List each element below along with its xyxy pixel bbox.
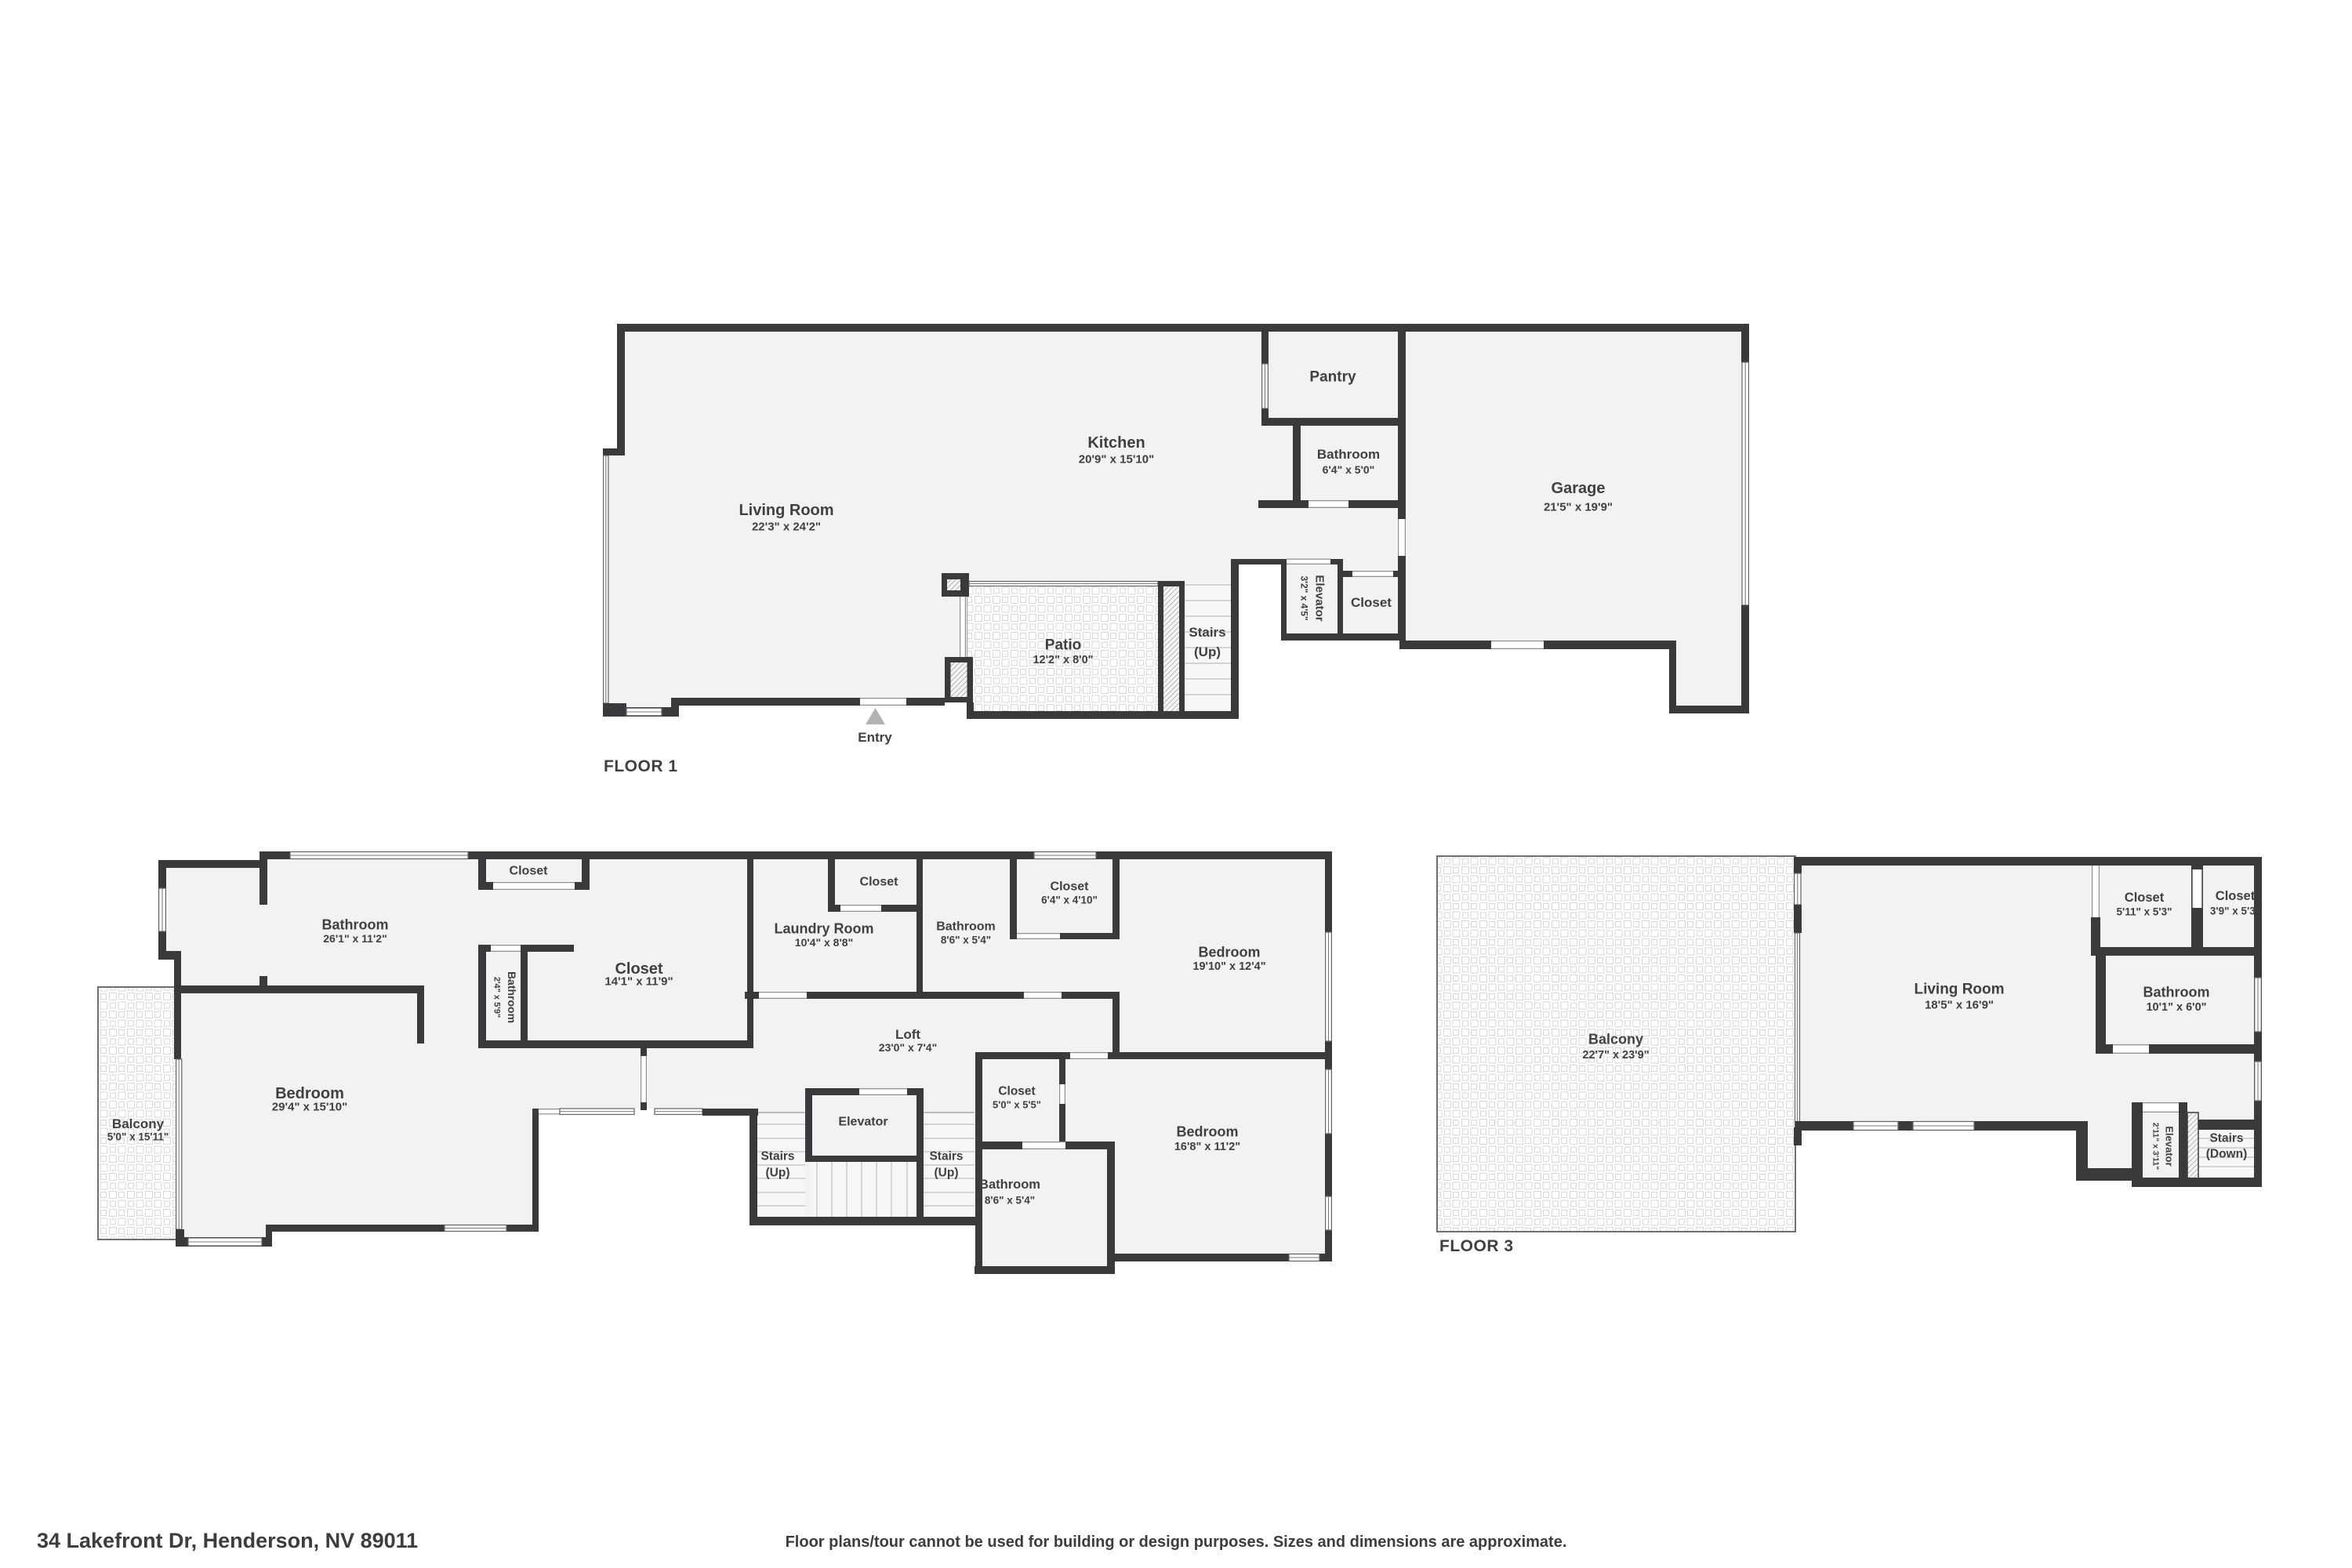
svg-text:18'5" x 16'9": 18'5" x 16'9": [1925, 998, 1994, 1011]
svg-text:21'5" x 19'9": 21'5" x 19'9": [1544, 500, 1613, 514]
svg-text:Bathroom: Bathroom: [979, 1178, 1040, 1192]
svg-text:Bathroom: Bathroom: [506, 971, 518, 1023]
svg-text:Bathroom: Bathroom: [936, 920, 996, 934]
svg-text:Patio: Patio: [1045, 637, 1081, 654]
svg-text:Bedroom: Bedroom: [1176, 1123, 1238, 1139]
svg-text:Pantry: Pantry: [1309, 369, 1356, 386]
svg-text:FLOOR 3: FLOOR 3: [1439, 1237, 1514, 1255]
svg-text:2'11" x 3'11": 2'11" x 3'11": [2151, 1123, 2160, 1171]
svg-text:Stairs: Stairs: [2209, 1131, 2243, 1145]
svg-text:29'4" x 15'10": 29'4" x 15'10": [272, 1100, 347, 1113]
svg-text:(Down): (Down): [2206, 1147, 2248, 1160]
svg-text:Closet: Closet: [510, 865, 549, 878]
svg-text:8'6" x 5'4": 8'6" x 5'4": [941, 935, 991, 946]
svg-text:2'4" x 5'9": 2'4" x 5'9": [492, 977, 501, 1018]
svg-text:26'1" x 11'2": 26'1" x 11'2": [323, 932, 387, 945]
svg-text:5'0" x 5'5": 5'0" x 5'5": [993, 1099, 1041, 1111]
svg-text:Garage: Garage: [1552, 480, 1606, 497]
svg-text:6'4" x 5'0": 6'4" x 5'0": [1323, 463, 1375, 476]
svg-text:Entry: Entry: [858, 730, 892, 745]
svg-text:34 Lakefront Dr, Henderson, NV: 34 Lakefront Dr, Henderson, NV 89011: [37, 1529, 418, 1552]
svg-text:Living Room: Living Room: [1914, 982, 2004, 998]
svg-text:Kitchen: Kitchen: [1087, 434, 1145, 452]
svg-text:(Up): (Up): [766, 1166, 790, 1179]
svg-text:22'7" x 23'9": 22'7" x 23'9": [1582, 1049, 1649, 1062]
svg-text:Closet: Closet: [2216, 889, 2256, 903]
svg-text:Stairs: Stairs: [929, 1149, 963, 1163]
svg-text:Elevator: Elevator: [838, 1116, 887, 1129]
svg-text:20'9" x 15'10": 20'9" x 15'10": [1079, 452, 1154, 466]
svg-text:Stairs: Stairs: [1189, 625, 1225, 640]
svg-text:Closet: Closet: [1051, 880, 1090, 894]
svg-text:23'0" x 7'4": 23'0" x 7'4": [879, 1041, 937, 1054]
svg-text:(Up): (Up): [935, 1166, 959, 1179]
svg-text:16'8" x 11'2": 16'8" x 11'2": [1174, 1141, 1240, 1153]
svg-text:12'2" x 8'0": 12'2" x 8'0": [1033, 654, 1093, 666]
svg-text:Closet: Closet: [998, 1084, 1035, 1098]
svg-text:Loft: Loft: [895, 1027, 920, 1042]
svg-text:3'2" x 4'5": 3'2" x 4'5": [1299, 575, 1310, 620]
svg-text:14'1" x 11'9": 14'1" x 11'9": [604, 975, 673, 988]
svg-text:(Up): (Up): [1194, 644, 1221, 659]
svg-text:Elevator: Elevator: [2164, 1126, 2176, 1166]
svg-text:Bathroom: Bathroom: [2143, 984, 2210, 1000]
svg-text:Bathroom: Bathroom: [1317, 447, 1380, 462]
svg-text:10'4" x 8'8": 10'4" x 8'8": [795, 936, 853, 949]
svg-text:3'9" x 5'3": 3'9" x 5'3": [2210, 906, 2260, 917]
svg-text:8'6" x 5'4": 8'6" x 5'4": [985, 1195, 1035, 1207]
svg-text:5'0" x 15'11": 5'0" x 15'11": [107, 1131, 169, 1143]
svg-text:Floor plans/tour cannot be use: Floor plans/tour cannot be used for buil…: [786, 1534, 1567, 1551]
svg-text:Bedroom: Bedroom: [1198, 944, 1260, 960]
svg-text:Elevator: Elevator: [1312, 575, 1326, 621]
svg-text:Closet: Closet: [2125, 891, 2165, 905]
svg-text:Closet: Closet: [860, 876, 899, 889]
svg-text:FLOOR 1: FLOOR 1: [604, 757, 678, 775]
svg-text:Closet: Closet: [1351, 595, 1392, 610]
svg-text:6'4" x 4'10": 6'4" x 4'10": [1041, 895, 1098, 906]
svg-text:Balcony: Balcony: [1588, 1031, 1643, 1047]
svg-text:19'10" x 12'4": 19'10" x 12'4": [1192, 960, 1265, 973]
svg-text:5'11" x 5'3": 5'11" x 5'3": [2116, 906, 2172, 918]
svg-text:22'3" x 24'2": 22'3" x 24'2": [752, 520, 821, 533]
svg-text:10'1" x 6'0": 10'1" x 6'0": [2146, 1001, 2206, 1014]
svg-text:Stairs: Stairs: [760, 1149, 794, 1163]
svg-text:Living Room: Living Room: [739, 502, 833, 519]
svg-text:Bathroom: Bathroom: [322, 916, 389, 932]
svg-text:Balcony: Balcony: [112, 1116, 165, 1131]
svg-text:Laundry Room: Laundry Room: [774, 920, 873, 936]
